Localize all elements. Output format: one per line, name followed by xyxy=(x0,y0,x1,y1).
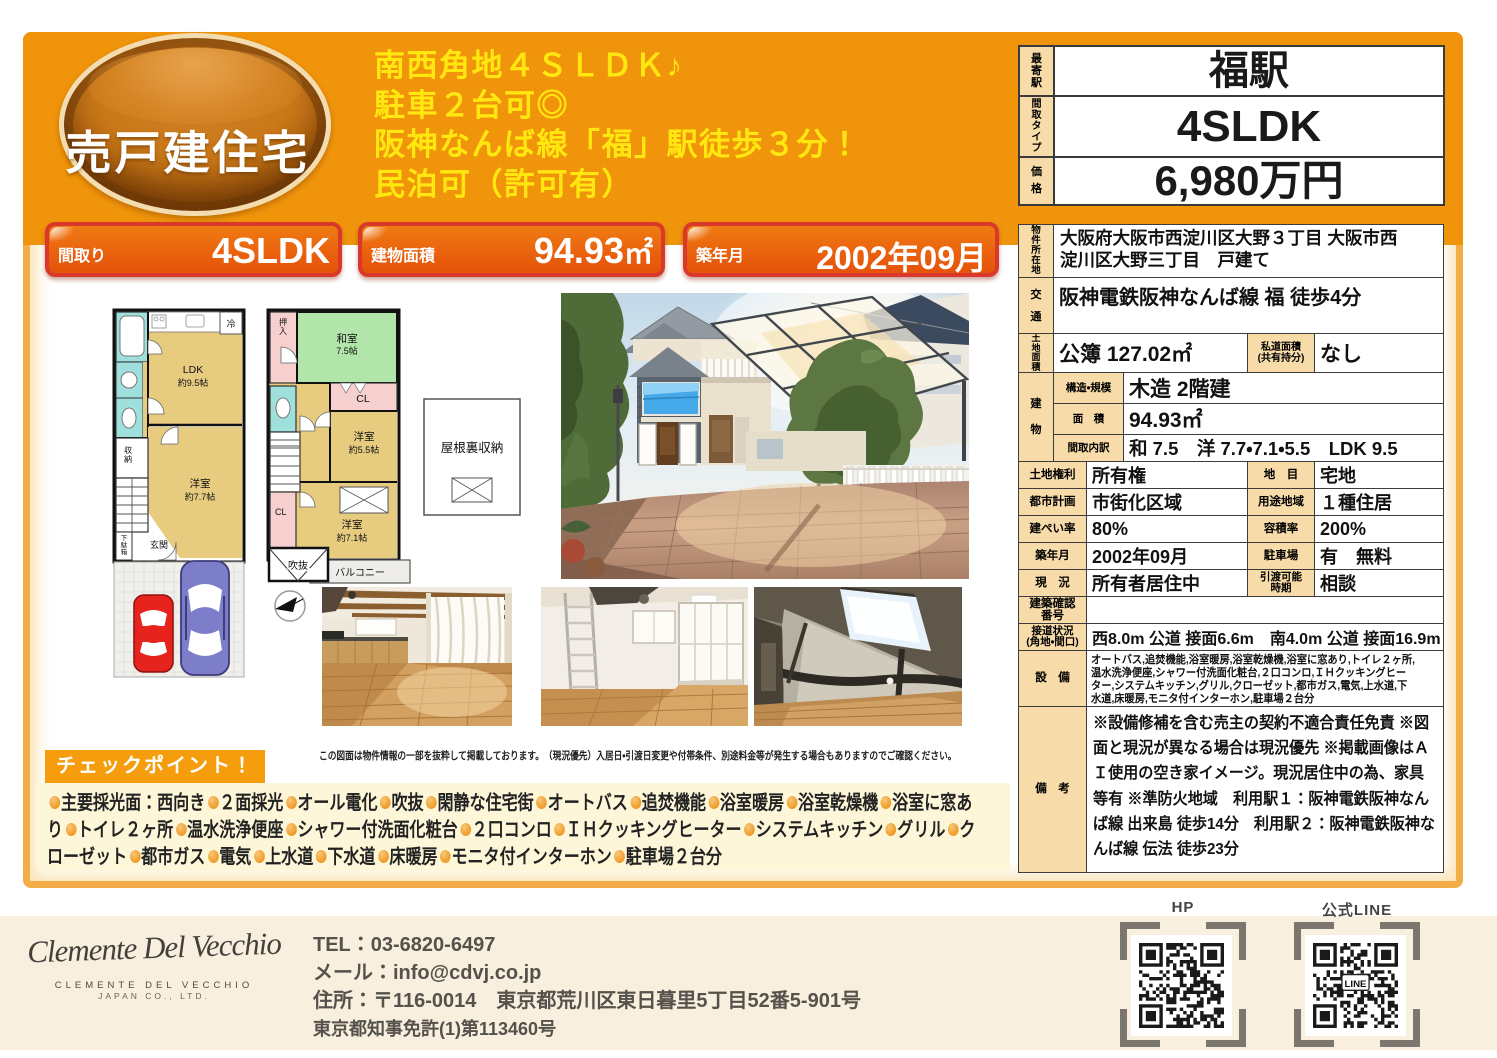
svg-text:CL: CL xyxy=(356,393,370,405)
svg-text:約7.1帖: 約7.1帖 xyxy=(337,532,368,543)
svg-text:和室: 和室 xyxy=(337,333,358,345)
svg-text:バルコニー: バルコニー xyxy=(335,567,385,579)
svg-text:吹抜: 吹抜 xyxy=(288,559,308,572)
svg-text:冷: 冷 xyxy=(226,318,235,329)
svg-text:洋室: 洋室 xyxy=(190,477,211,490)
svg-text:押入: 押入 xyxy=(279,317,287,336)
svg-text:下駄箱: 下駄箱 xyxy=(121,534,128,556)
svg-text:約5.5帖: 約5.5帖 xyxy=(349,444,380,455)
svg-text:屋根裏収納: 屋根裏収納 xyxy=(441,440,504,455)
svg-text:洋室: 洋室 xyxy=(354,430,375,443)
svg-text:約7.7帖: 約7.7帖 xyxy=(185,491,216,502)
svg-text:玄関: 玄関 xyxy=(150,539,168,550)
svg-text:収納: 収納 xyxy=(124,446,132,464)
svg-text:LINE: LINE xyxy=(1345,979,1368,990)
svg-text:LDK: LDK xyxy=(183,364,203,376)
svg-text:CL: CL xyxy=(275,507,287,517)
svg-text:約9.5帖: 約9.5帖 xyxy=(178,377,209,388)
svg-text:7.5帖: 7.5帖 xyxy=(336,345,358,356)
svg-text:洋室: 洋室 xyxy=(342,518,363,531)
